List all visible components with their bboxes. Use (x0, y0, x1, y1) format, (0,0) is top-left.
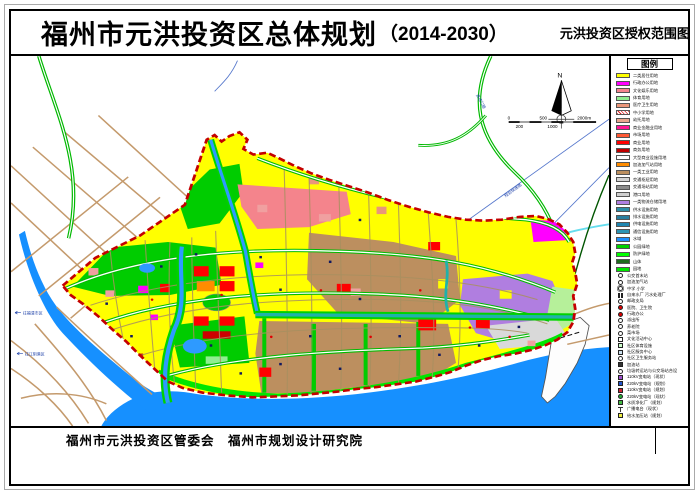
scale-2000: 2000m (577, 115, 591, 120)
legend-landuse-label: 大型商业设施用地 (633, 155, 666, 161)
legend-symbol-label: 110kV变电站（现状） (627, 375, 668, 381)
legend-color-swatch (616, 237, 630, 242)
legend-landuse-row: 一类工业用地 (611, 169, 688, 176)
legend-landuse-label: 体育用地 (633, 95, 650, 101)
legend-symbol-icon (618, 356, 623, 361)
legend-symbol-label: 医院、卫生院 (627, 305, 652, 311)
legend-color-swatch (616, 185, 630, 190)
page-title-years: （2014-2030） (379, 19, 508, 46)
legend-color-swatch (616, 118, 630, 123)
legend-landuse-label: 通信设施用地 (633, 229, 658, 235)
legend-landuse-label: 一类物流仓储用地 (633, 199, 666, 205)
legend-symbol-label: 垃圾转运站与公交场站合设 (627, 368, 677, 374)
legend-symbol-icon (618, 369, 623, 374)
legend-landuse-label: 医疗卫生用地 (633, 103, 658, 109)
direction-label-west: 往福清市区 (23, 311, 43, 316)
legend-landuse-row: 市场用地 (611, 132, 688, 139)
legend-symbol-label: 社区服务中心 (627, 349, 652, 355)
legend-landuse-label: 市场用地 (633, 132, 650, 138)
legend-symbol-label: 水质净化厂（规划） (627, 400, 665, 406)
legend-symbol-label: 文化活动中心 (627, 337, 652, 343)
legend-landuse-row: 行政办公用地 (611, 79, 688, 86)
legend-landuse-label: 二类居住用地 (633, 73, 658, 79)
legend-landuse-row: 医疗卫生用地 (611, 102, 688, 109)
page-subtitle: 元洪投资区授权范围图 (560, 23, 690, 42)
legend-color-swatch (616, 252, 630, 257)
legend-symbol-label: 110kV变电站（规划） (627, 387, 668, 393)
legend-symbol-icon (618, 388, 623, 393)
legend-landuse-row: 商业用地 (611, 139, 688, 146)
legend-color-swatch (616, 125, 630, 130)
legend-symbol-label: 中学 小学 (627, 286, 645, 292)
legend-symbol-label: 菜市场 (627, 330, 640, 336)
legend-symbol-icon (618, 299, 623, 304)
legend-landuse-label: 山体 (633, 259, 641, 265)
legend-landuse-row: 二类居住用地 (611, 72, 688, 79)
legend-symbol-icon (618, 343, 623, 348)
legend-landuse-row: 园地 (611, 265, 688, 272)
legend-landuse-label: 商务用地 (633, 147, 650, 153)
legend-symbol-icon (618, 286, 623, 291)
legend-color-swatch (616, 96, 630, 101)
legend-symbol-label: 加油加气站 (627, 279, 648, 285)
legend-landuse-label: 供水设施用地 (633, 207, 658, 213)
legend-color-swatch (616, 229, 630, 234)
legend-color-swatch (616, 200, 630, 205)
legend-landuse-row: 一类物流仓储用地 (611, 198, 688, 205)
legend-symbol-icon (618, 324, 623, 329)
legend-symbol-list: 公交首末站加油加气站中学 小学自来水厂 污水处理厂邮政支局医院、卫生院行政办公派… (611, 273, 688, 419)
legend-color-swatch (616, 267, 630, 272)
north-label: N (557, 73, 562, 80)
footer-credits: 福州市元洪投资区管委会 福州市规划设计研究院 (66, 428, 688, 454)
sheet-content: N 0 500 2000m (11, 56, 688, 428)
legend-symbol-icon (618, 413, 623, 418)
legend-color-swatch (616, 110, 630, 115)
legend-landuse-label: 园地 (633, 266, 641, 272)
scale-500: 500 (539, 115, 547, 120)
legend-symbol-row: 给水加压站（规划） (611, 412, 688, 418)
legend-symbol-icon (618, 293, 623, 298)
legend-landuse-row: 供电设施用地 (611, 221, 688, 228)
legend-landuse-label: 供电设施用地 (633, 222, 658, 228)
scale-200: 200 (516, 124, 524, 129)
legend-symbol-icon (618, 273, 623, 278)
map-canvas: N 0 500 2000m (11, 56, 609, 428)
legend-landuse-label: 水域 (633, 236, 641, 242)
legend-symbol-label: 社区体育设施 (627, 343, 652, 349)
footer-title-block (655, 428, 689, 454)
legend-landuse-row: 交通枢纽用地 (611, 176, 688, 183)
legend-symbol-label: 社区卫生服务站 (627, 356, 656, 362)
legend-landuse-row: 商务用地 (611, 146, 688, 153)
legend-landuse-row: 加油加气站用地 (611, 161, 688, 168)
legend-landuse-label: 交通场站用地 (633, 184, 658, 190)
legend-panel: 图例 二类居住用地行政办公用地文化娱乐用地体育用地医疗卫生用地中小学用地幼托用地… (609, 56, 688, 428)
legend-landuse-row: 防护绿地 (611, 251, 688, 258)
legend-landuse-row: 公园绿地 (611, 243, 688, 250)
legend-landuse-label: 文化娱乐用地 (633, 88, 658, 94)
direction-label-south: 往江阴港区 (25, 352, 45, 357)
legend-color-swatch (616, 215, 630, 220)
legend-color-swatch (616, 81, 630, 86)
legend-symbol-icon (618, 362, 623, 367)
legend-landuse-row: 中小学用地 (611, 109, 688, 116)
title-bar: 福州市元洪投资区总体规划 （2014-2030） 元洪投资区授权范围图 (11, 11, 688, 56)
legend-landuse-row: 文化娱乐用地 (611, 87, 688, 94)
legend-landuse-label: 幼托用地 (633, 117, 650, 123)
legend-symbol-icon (618, 280, 623, 285)
legend-landuse-label: 排水设施用地 (633, 214, 658, 220)
legend-color-swatch (616, 155, 630, 160)
legend-landuse-list: 二类居住用地行政办公用地文化娱乐用地体育用地医疗卫生用地中小学用地幼托用地商业金… (611, 72, 688, 273)
legend-symbol-label: 220kV变电站（规划） (627, 381, 668, 387)
legend-color-swatch (616, 259, 630, 264)
legend-landuse-label: 商业金融业用地 (633, 125, 662, 131)
planning-map: N 0 500 2000m (11, 56, 609, 428)
legend-landuse-row: 供水设施用地 (611, 206, 688, 213)
legend-landuse-row: 通信设施用地 (611, 228, 688, 235)
legend-landuse-row: 大型商业设施用地 (611, 154, 688, 161)
legend-symbol-label: 派出所 (627, 318, 640, 324)
plan-sheet: 福州市元洪投资区总体规划 （2014-2030） 元洪投资区授权范围图 (0, 0, 699, 494)
legend-color-swatch (616, 244, 630, 249)
legend-landuse-label: 行政办公用地 (633, 80, 658, 86)
legend-symbol-icon (618, 381, 623, 386)
legend-landuse-row: 港口用地 (611, 191, 688, 198)
legend-symbol-label: 广播电台（现状） (627, 406, 660, 412)
legend-landuse-label: 公园绿地 (633, 244, 650, 250)
page-title: 福州市元洪投资区总体规划 (41, 13, 377, 52)
legend-symbol-icon (618, 318, 623, 323)
footer-bar: 福州市元洪投资区管委会 福州市规划设计研究院 (11, 426, 688, 454)
legend-color-swatch (616, 140, 630, 145)
legend-landuse-row: 山体 (611, 258, 688, 265)
legend-landuse-row: 体育用地 (611, 94, 688, 101)
legend-color-swatch (616, 148, 630, 153)
legend-symbol-label: 220kV变电站（现状） (627, 394, 668, 400)
legend-landuse-row: 商业金融业用地 (611, 124, 688, 131)
legend-color-swatch (616, 207, 630, 212)
legend-symbol-icon (618, 375, 623, 380)
legend-symbol-label: 邮政支局 (627, 299, 644, 305)
legend-landuse-label: 一类工业用地 (633, 170, 658, 176)
legend-title: 图例 (627, 58, 673, 70)
legend-symbol-label: 给水加压站（规划） (627, 413, 665, 419)
legend-landuse-row: 幼托用地 (611, 117, 688, 124)
legend-color-swatch (616, 88, 630, 93)
legend-color-swatch (616, 192, 630, 197)
map-frame: 福州市元洪投资区总体规划 （2014-2030） 元洪投资区授权范围图 (9, 9, 690, 486)
legend-color-swatch (616, 103, 630, 108)
legend-landuse-label: 商业用地 (633, 140, 650, 146)
legend-color-swatch (616, 222, 630, 227)
legend-symbol-icon (618, 407, 623, 412)
legend-color-swatch (616, 170, 630, 175)
legend-symbol-icon (618, 312, 623, 317)
legend-color-swatch (616, 162, 630, 167)
scale-1000: 1000 (547, 124, 558, 129)
legend-symbol-label: 养老院 (627, 324, 640, 330)
legend-landuse-row: 水域 (611, 236, 688, 243)
legend-symbol-label: 行政办公 (627, 311, 644, 317)
legend-symbol-icon (618, 337, 623, 342)
legend-landuse-row: 交通场站用地 (611, 184, 688, 191)
legend-symbol-icon (618, 331, 623, 336)
legend-color-swatch (616, 133, 630, 138)
legend-symbol-label: 加油站 (627, 362, 640, 368)
legend-symbol-icon (618, 394, 623, 399)
legend-symbol-label: 公交首末站 (627, 273, 648, 279)
legend-symbol-icon (618, 350, 623, 355)
legend-symbol-label: 自来水厂 污水处理厂 (627, 292, 666, 298)
legend-symbol-icon (618, 400, 623, 405)
legend-landuse-label: 中小学用地 (633, 110, 654, 116)
legend-landuse-label: 加油加气站用地 (633, 162, 662, 168)
legend-color-swatch (616, 73, 630, 78)
legend-landuse-row: 排水设施用地 (611, 213, 688, 220)
legend-symbol-icon (618, 305, 623, 310)
legend-landuse-label: 港口用地 (633, 192, 650, 198)
legend-landuse-label: 防护绿地 (633, 251, 650, 257)
legend-color-swatch (616, 177, 630, 182)
legend-landuse-label: 交通枢纽用地 (633, 177, 658, 183)
